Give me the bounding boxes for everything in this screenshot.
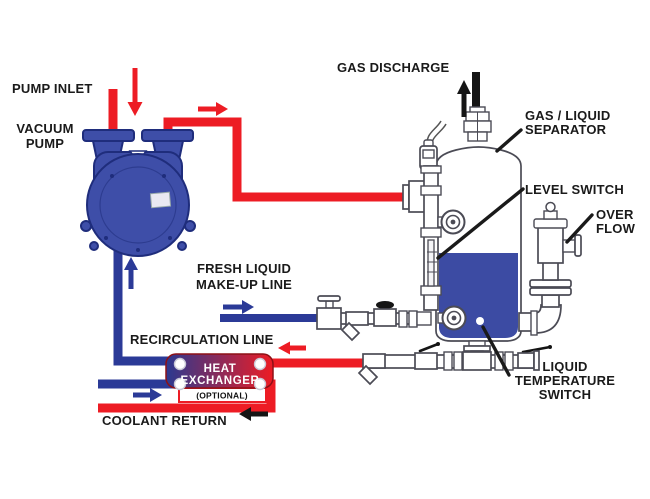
he-port <box>255 359 266 370</box>
temp-switch-label-line3: SWITCH <box>539 387 591 402</box>
makeup-valve-train <box>317 296 431 340</box>
pump-lug <box>185 221 195 231</box>
temp-switch-label-line2: TEMPERATURE <box>515 373 615 388</box>
overflow-knob <box>546 203 555 212</box>
pump-lug <box>178 242 186 250</box>
pump-lug <box>81 221 91 231</box>
piping-diagram: HEAT EXCHANGER (OPTIONAL) <box>0 0 650 499</box>
vacuum-pump-label-line1: VACUUM <box>16 121 73 136</box>
switch-cable <box>432 124 446 147</box>
vacuum-pump-label-line2: PUMP <box>26 136 64 151</box>
recirculation-label: RECIRCULATION LINE <box>130 332 274 347</box>
temp-switch-label-line1: LIQUID <box>542 359 587 374</box>
overflow-valve-body <box>538 227 563 263</box>
pump-discharge-pipe-hot <box>168 122 410 197</box>
gauge-top-handwheel <box>442 211 465 234</box>
separator-label-line1: GAS / LIQUID <box>525 108 610 123</box>
makeup-arrow-right <box>223 300 254 314</box>
overflow-side-flange <box>575 235 581 256</box>
he-port <box>175 359 186 370</box>
overflow-elbow <box>535 305 561 333</box>
diagram-canvas: HEAT EXCHANGER (OPTIONAL) <box>0 0 650 499</box>
ball-valve <box>374 301 396 326</box>
makeup-elbow <box>417 312 431 325</box>
recirculation-arrow-left <box>278 342 306 355</box>
level-switch-label: LEVEL SWITCH <box>525 182 624 197</box>
makeup-strainer <box>342 312 368 340</box>
pump-inlet-arrow <box>128 68 143 116</box>
sight-glass <box>428 240 434 286</box>
makeup-label-line2: MAKE-UP LINE <box>196 277 292 292</box>
coolant-return-label: COOLANT RETURN <box>102 413 227 428</box>
tee-fitting <box>463 352 491 370</box>
coolant-supply-arrow-right <box>133 388 162 402</box>
gauge-bottom-handwheel <box>443 307 466 330</box>
gas-discharge-pipe <box>472 72 480 110</box>
overflow-riser <box>542 295 559 307</box>
heat-exchanger: HEAT EXCHANGER (OPTIONAL) <box>166 354 273 402</box>
pump-right-flange <box>142 130 193 141</box>
heat-exchanger-label-line1: HEAT <box>204 363 237 375</box>
discharge-arrow-right <box>198 102 228 116</box>
liquid-temperature-switch-dot <box>476 317 484 325</box>
globe-valve <box>317 296 341 329</box>
pump-nameplate <box>150 192 170 208</box>
separator-callout <box>497 130 521 151</box>
overflow-flange <box>530 288 571 295</box>
inlet-flange-plate <box>403 185 409 209</box>
gas-discharge-fitting <box>464 107 491 141</box>
suction-arrow-up <box>124 257 138 289</box>
overflow-label-line2: FLOW <box>596 221 636 236</box>
overflow-assembly <box>519 203 581 336</box>
bottom-lever-valve <box>415 342 440 369</box>
overflow-pipe <box>543 262 558 280</box>
heat-exchanger-label-line2: EXCHANGER <box>181 375 260 387</box>
pump-inlet-label: PUMP INLET <box>12 81 93 96</box>
overflow-flange <box>530 280 571 287</box>
pump-lug <box>90 242 98 250</box>
y-strainer <box>359 354 385 384</box>
separator-label-line2: SEPARATOR <box>525 122 607 137</box>
overflow-label-line1: OVER <box>596 207 634 222</box>
makeup-label-line1: FRESH LIQUID <box>197 261 291 276</box>
pump-left-flange <box>83 130 134 141</box>
vacuum-pump <box>81 130 195 256</box>
pump-volute <box>87 154 189 256</box>
gas-discharge-label: GAS DISCHARGE <box>337 60 450 75</box>
heat-exchanger-optional-label: (OPTIONAL) <box>196 391 248 401</box>
